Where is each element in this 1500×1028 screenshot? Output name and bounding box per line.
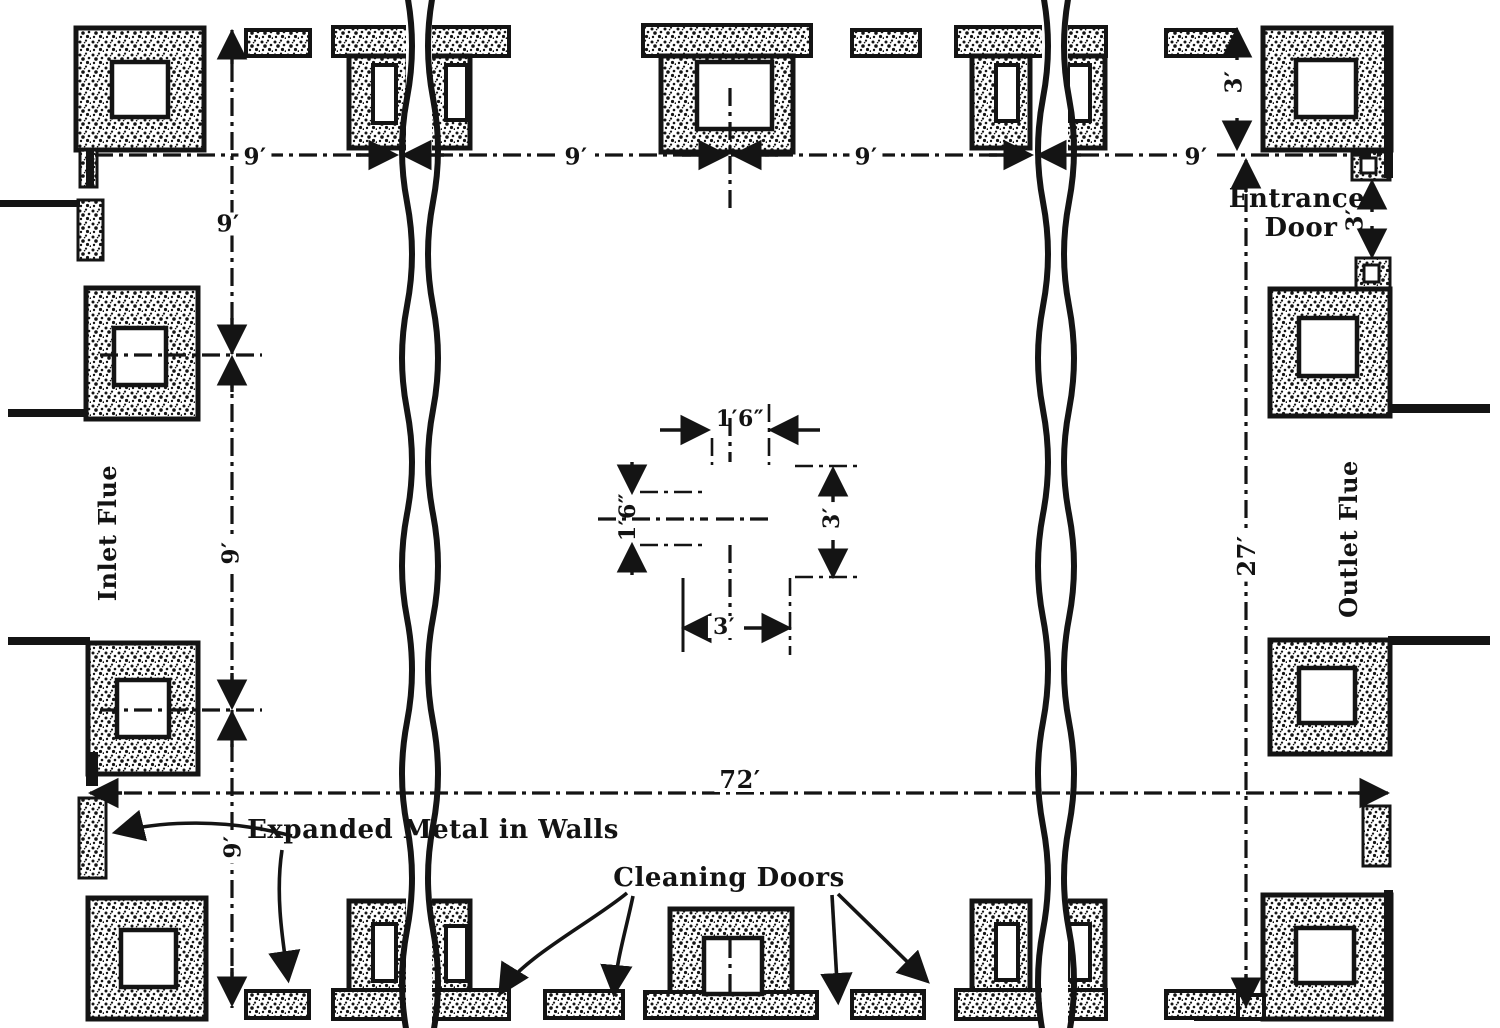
wall-left-lower xyxy=(86,752,98,786)
dim-bay-top-3: 9′ xyxy=(849,146,882,169)
dim-bay-left-1: 9′ xyxy=(211,213,244,236)
label-expanded-metal: Expanded Metal in Walls xyxy=(247,817,619,843)
leader-cleaning-door-4 xyxy=(838,894,926,980)
pier-hollow-cores xyxy=(112,60,1379,994)
slot-a-top-left xyxy=(373,65,396,123)
dust-chamber-plan: Inlet Flue Outlet Flue Entrance Door Exp… xyxy=(0,0,1500,1028)
dim-wall-row-depth: 3′ xyxy=(1223,65,1246,98)
dim-bay-top-1: 9′ xyxy=(238,146,271,169)
slot-a-top-right xyxy=(446,65,467,120)
leader-cleaning-door-1 xyxy=(501,893,627,992)
dim-entrance-door: 3′ xyxy=(1344,208,1367,231)
wall-right-lower xyxy=(1384,890,1393,1020)
dim-pier-height: 3′ xyxy=(821,502,843,534)
wall-stub-right-lower xyxy=(1363,806,1390,866)
wall-inlet-top-edge xyxy=(8,409,88,417)
leader-cleaning-door-2 xyxy=(614,896,633,992)
dim-core-height: 1′6″ xyxy=(617,493,639,541)
wall-stub-left-lower xyxy=(79,798,106,878)
slot-a-bottom-left xyxy=(373,924,396,981)
dimension-arrows xyxy=(93,32,1385,1003)
leader-cleaning-door-3 xyxy=(832,895,838,1000)
dim-overall-length: 72′ xyxy=(714,768,765,792)
core-right-3 xyxy=(1299,668,1355,723)
core-bottom-left xyxy=(121,930,176,987)
dim-pier-width: 3′ xyxy=(708,616,740,638)
leader-expanded-metal-bottom xyxy=(279,850,288,978)
centerlines xyxy=(90,30,1390,1008)
core-right-2 xyxy=(1299,318,1357,376)
slot-door-jamb-lower xyxy=(1364,265,1379,282)
wall-segment-bottom-2 xyxy=(545,991,623,1018)
pier-top-center-bar xyxy=(643,25,811,56)
split-pier-b-top-bar xyxy=(956,27,1106,56)
label-entrance-door-line2: Door xyxy=(1265,215,1338,241)
slot-a-bottom-right xyxy=(446,926,467,981)
dim-core-width: 1′6″ xyxy=(716,408,764,430)
wall-inlet-bottom-edge xyxy=(8,637,90,645)
slot-door-jamb-upper xyxy=(1361,158,1376,173)
label-outlet-flue: Outlet Flue xyxy=(1337,460,1361,618)
dim-bay-top-2: 9′ xyxy=(559,146,592,169)
wall-segment-bottom-1 xyxy=(246,991,309,1018)
wall-left-ledge xyxy=(0,200,80,207)
wall-outlet-top-edge xyxy=(1388,404,1490,413)
label-cleaning-doors: Cleaning Doors xyxy=(613,865,844,891)
slot-b-bottom-left xyxy=(996,924,1018,980)
dim-bay-left-2: 9′ xyxy=(220,536,243,569)
wall-left-upper xyxy=(86,148,94,188)
dim-overall-width: 27′ xyxy=(1235,530,1259,581)
core-top-right xyxy=(1296,60,1356,117)
split-pier-b-bottom-bar xyxy=(956,990,1106,1019)
wall-segment-bottom-3 xyxy=(852,991,924,1018)
dim-bay-top-4: 9′ xyxy=(1179,146,1212,169)
slot-b-top-left xyxy=(996,65,1018,121)
wall-stub-left-upper xyxy=(78,200,103,260)
core-bottom-center xyxy=(704,938,762,994)
wall-segment-top-2 xyxy=(852,30,920,56)
wall-outlet-bottom-edge xyxy=(1388,636,1490,645)
core-top-left xyxy=(112,62,168,117)
core-top-center xyxy=(697,62,772,129)
wall-segment-bottom-4 xyxy=(1166,991,1238,1018)
wall-segment-top-1 xyxy=(246,30,310,56)
wall-segment-top-3 xyxy=(1166,30,1236,56)
dim-bay-left-3: 9′ xyxy=(222,830,245,863)
core-bottom-right xyxy=(1296,928,1354,983)
label-inlet-flue: Inlet Flue xyxy=(96,465,120,601)
